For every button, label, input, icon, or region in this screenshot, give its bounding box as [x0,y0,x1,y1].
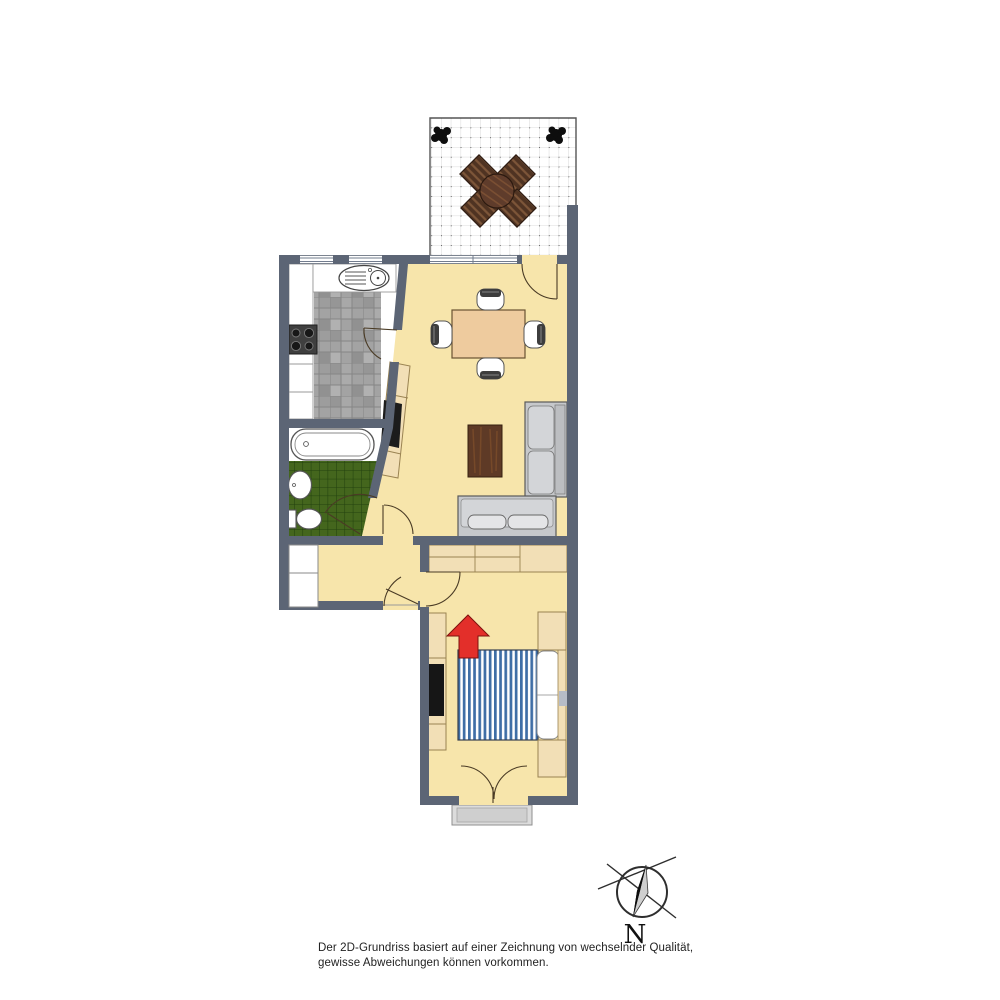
compass-needle-light [633,865,648,917]
coffee-table [468,425,502,477]
opening-bedroom-door [420,572,429,607]
living-room-window [430,256,517,263]
double-bed [458,650,566,740]
hallway-closet [289,545,318,607]
nightstand [538,612,566,650]
floor-plan-drawing: N [0,0,1000,1000]
wall-notch [559,691,567,706]
disclaimer-text: Der 2D-Grundriss basiert auf einer Zeich… [318,941,693,970]
stove-icon [289,325,317,354]
opening-terrace-door [522,255,557,264]
sofa-vertical [525,402,567,497]
disclaimer-line-2: gewisse Abweichungen können vorkommen. [318,956,693,971]
kitchen-window [349,256,382,263]
wall-right [567,255,578,805]
wall-bathroom-bottom [279,536,368,545]
dining-chair [431,321,452,348]
kitchen-sink-icon [339,266,389,291]
dining-chair [524,321,545,348]
wall-mid [347,536,571,545]
dining-table [452,310,525,358]
tv-dresser [427,613,446,750]
disclaimer-line-1: Der 2D-Grundriss basiert auf einer Zeich… [318,941,693,956]
dining-chair [477,289,504,310]
sofa-pillow [508,515,548,529]
tv-icon [429,664,444,716]
floor-plan-page: N Der 2D-Grundriss basiert auf einer Zei… [0,0,1000,1000]
wall-terrace-piece [567,205,578,257]
sofa-horizontal [458,496,556,538]
washbasin-icon [289,471,312,499]
compass-rose: N [598,857,676,950]
nightstand [538,740,566,777]
kitchen-window [300,256,333,263]
sofa-pillow [468,515,506,529]
opening-living-hall [383,536,413,545]
kitchen-tile-area [314,292,381,419]
wall-left [279,255,289,610]
dining-chair [477,358,504,379]
wardrobe [429,545,567,572]
wall-kitchen-bathroom [279,419,393,428]
bathtub-icon [291,429,374,460]
outdoor-step [452,805,532,825]
toilet-icon [288,509,322,529]
